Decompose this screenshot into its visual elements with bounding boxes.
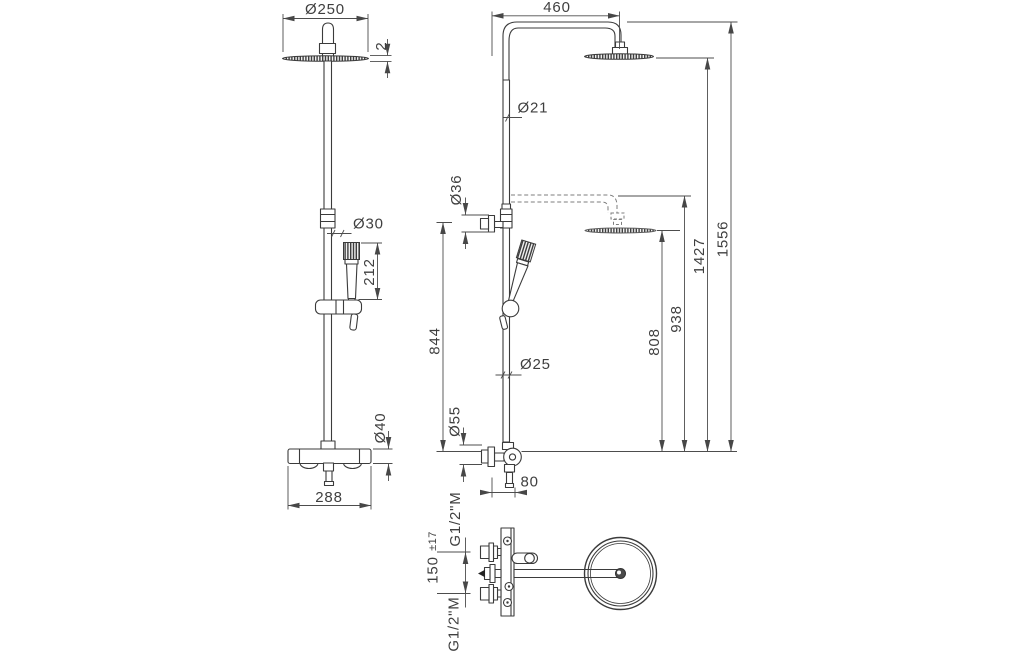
side-lowered-arm-phantom [511, 195, 656, 233]
label-top-connection-tolerance: ±17 [427, 531, 439, 551]
label-side-arm-projection: 460 [543, 0, 570, 16]
side-slider-holder [502, 300, 519, 317]
label-front-handset-length: 212 [361, 258, 378, 285]
label-front-head-thickness: 2 [373, 41, 390, 50]
side-thermostatic-valve [482, 443, 522, 488]
dim-side-head-height: 1427 [656, 58, 714, 452]
label-side-overall-height: 1556 [715, 221, 732, 258]
top-control-knob [478, 565, 501, 583]
label-front-valve-diameter: Ø40 [372, 413, 389, 444]
front-hand-shower [344, 243, 360, 331]
label-top-connection-spacing: 150 [425, 556, 442, 583]
label-front-handset-diameter: Ø30 [353, 216, 384, 233]
front-thermostatic-valve [288, 441, 371, 486]
side-diverter-knob [481, 216, 504, 233]
front-riser-pipe [324, 61, 332, 442]
front-slider-holder [316, 300, 362, 314]
dim-front-head-thickness: 2 [370, 39, 392, 78]
dim-front-valve-diameter: Ø40 [372, 413, 393, 481]
dim-side-lowered-head-height: 808 [646, 231, 680, 452]
dim-side-overall-height: 1556 [627, 22, 738, 452]
label-front-valve-width: 288 [315, 489, 342, 506]
label-side-head-height: 1427 [691, 238, 708, 275]
label-top-lower-connection: G1/2"M [446, 596, 463, 651]
dim-side-diverter-diameter: Ø36 [448, 175, 494, 249]
dim-front-handset-length: 212 [359, 243, 383, 300]
label-top-upper-connection: G1/2"M [447, 491, 464, 546]
side-view: 460 Ø21 Ø36 [427, 0, 738, 498]
dim-side-lowered-arm-height: 938 [618, 196, 691, 452]
top-holder-capsule [512, 553, 538, 564]
side-overhead-shower [585, 54, 654, 60]
technical-drawing-page: Ø250 2 [0, 0, 1024, 657]
label-side-wall-offset: 80 [521, 474, 539, 491]
label-side-riser-lower-diameter: Ø25 [520, 356, 551, 373]
front-top-nut [320, 44, 336, 54]
top-view: G1/2"M ±17 150 G1/2"M [425, 491, 657, 651]
label-side-lowered-arm-height: 938 [668, 305, 685, 332]
dim-side-riser-upper-diameter: Ø21 [504, 100, 549, 122]
label-side-lowered-head-height: 808 [646, 328, 663, 355]
front-riser-union [321, 209, 336, 228]
top-wall-plate [501, 528, 514, 616]
label-side-riser-height: 844 [427, 327, 444, 354]
top-lower-fitting [481, 585, 502, 604]
dim-side-valve-body-diameter: Ø55 [447, 406, 483, 482]
top-shower-arm [514, 570, 618, 578]
temperature-indicator-arrow [478, 570, 485, 577]
label-side-diverter-diameter: Ø36 [448, 175, 465, 206]
shower-column-drawing: Ø250 2 [0, 0, 1024, 657]
top-upper-fitting [481, 543, 502, 562]
side-riser-pipe [503, 80, 510, 442]
label-side-valve-body-diameter: Ø55 [447, 406, 464, 437]
label-side-riser-upper-diameter: Ø21 [518, 100, 549, 117]
side-shower-arm [503, 22, 621, 80]
label-front-head-diameter: Ø250 [305, 1, 345, 18]
front-view: Ø250 2 [283, 1, 393, 510]
